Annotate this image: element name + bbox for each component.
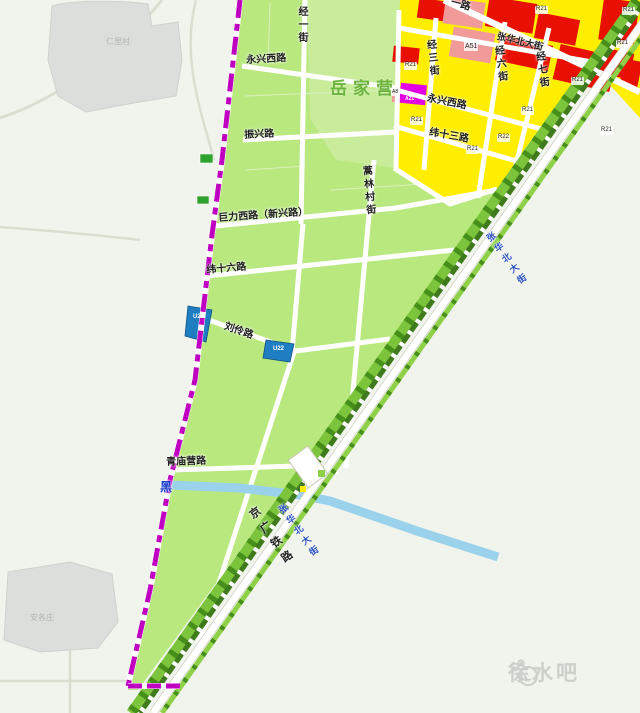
village-label-yuejiaying: 岳家营 (330, 80, 399, 97)
road-label-zhenxing: 振兴路 (244, 129, 274, 141)
road-label-yongxing-west: 永兴西路 (246, 54, 286, 66)
parcel-code: R21 (466, 146, 479, 154)
parcel-code-a8: A8 (391, 89, 399, 96)
parcel-code: R21 (521, 107, 534, 115)
parcel-code: R21 (535, 6, 548, 14)
planning-map: 岳家营 仁里村 安各庄 永兴西路 永兴西路 振兴路 巨力西路（新兴路） 纬十六路… (0, 0, 640, 713)
parcel-code: R21 (410, 117, 423, 125)
parcel-code-a21: A21 (404, 96, 415, 103)
parcel-code: R21 (616, 40, 629, 48)
watermark: 徐水吧 (508, 657, 580, 687)
road-label-jing1: 经一街 (296, 6, 306, 45)
parcel-code: R21 (600, 127, 613, 135)
parcel-code-a51: A51 (464, 42, 478, 51)
parcel-code: R21 (571, 77, 584, 85)
parcel-code: R21 (622, 7, 635, 15)
map-canvas (0, 0, 640, 713)
river-label: 黑 (160, 481, 172, 493)
parcel-code-r22: R22 (497, 134, 510, 142)
parcel-code: R21 (404, 62, 417, 70)
parcel-code-u21: U21 (192, 314, 205, 322)
village-area-angezhuang (4, 562, 118, 652)
village-label-angezhuang: 安各庄 (30, 614, 54, 622)
parcel-code-u22: U22 (272, 346, 285, 354)
watermark-paw-icon (508, 657, 544, 691)
road-label-qingmiaoying: 青庙营路 (166, 457, 206, 468)
village-label-renlicun: 仁里村 (106, 38, 130, 46)
